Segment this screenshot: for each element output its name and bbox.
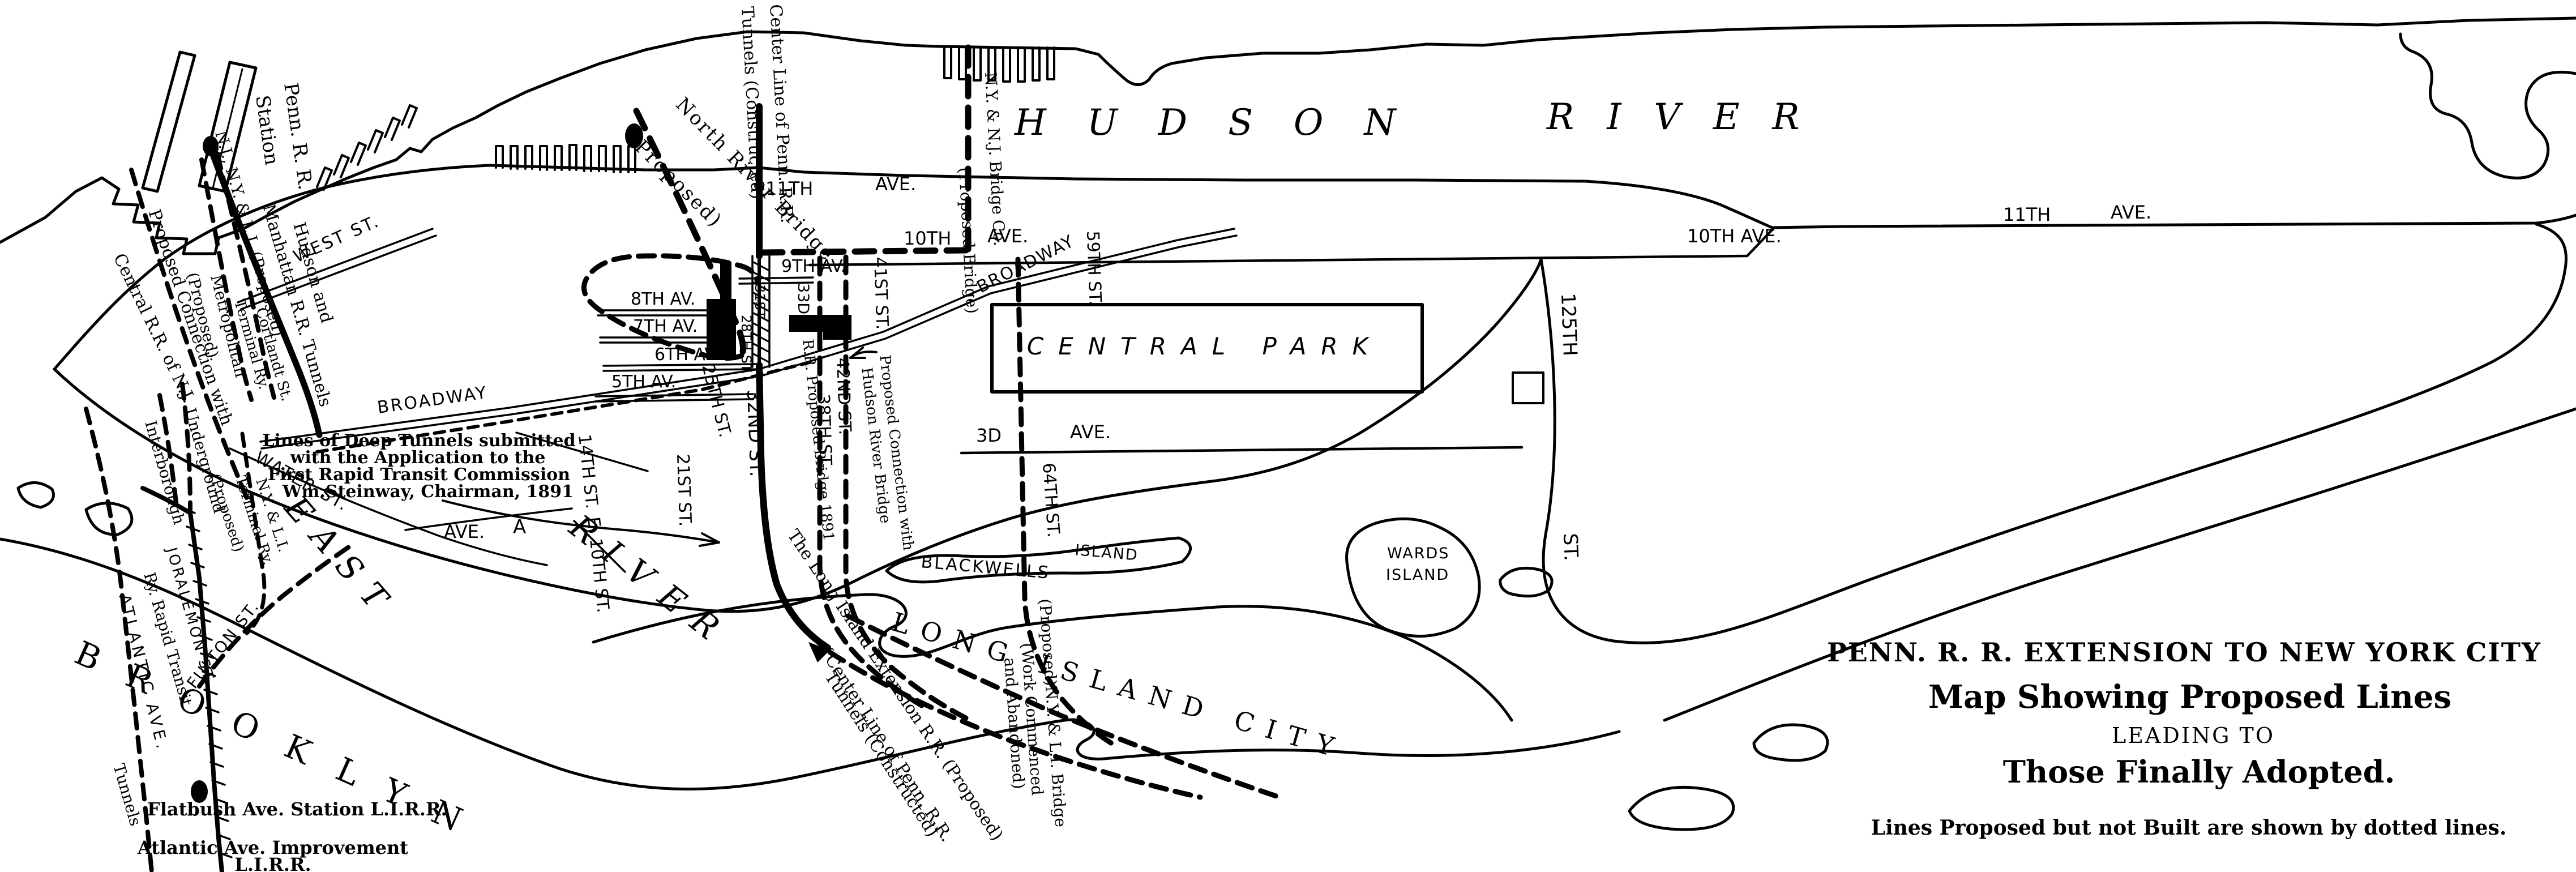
label-st-31: 31ST xyxy=(752,284,768,319)
title-line-3: LEADING TO xyxy=(2112,723,2275,748)
label-st-28: 28TH ST. xyxy=(738,315,754,375)
eleventh-ave-proposed-line xyxy=(763,250,966,253)
label-ave-10-left-num: 10TH xyxy=(904,228,951,249)
label-ave-3-word: AVE. xyxy=(1070,421,1111,443)
grand-central-block xyxy=(789,315,851,332)
grand-central-block-2 xyxy=(823,332,851,340)
label-wards-island: ISLAND xyxy=(1386,566,1449,584)
label-av-7: 7TH AV. xyxy=(633,317,698,336)
label-wards: WARDS xyxy=(1387,545,1449,562)
label-av-5: 5TH AV. xyxy=(611,372,676,392)
label-av-6: 6TH AV. xyxy=(654,345,719,365)
map: HUDSONRIVEREASTRIVERBROOKLYNLONG ISLAND … xyxy=(0,0,2576,872)
title-line-2: Map Showing Proposed Lines xyxy=(1928,678,2451,716)
label-ave-a-word: AVE. xyxy=(444,521,485,542)
label-ave-a-letter: A xyxy=(513,516,526,538)
label-ave-3-num: 3D xyxy=(976,425,1002,446)
title-line-4: Those Finally Adopted. xyxy=(2003,754,2395,790)
label-st-41: 41ST ST. xyxy=(870,257,892,330)
label-st-42: 42ND ST. xyxy=(832,357,855,435)
title-line-1: PENN. R. R. EXTENSION TO NEW YORK CITY xyxy=(1827,637,2541,668)
label-st-59: 59TH ST. xyxy=(1082,230,1105,306)
label-ave-11-left-word: AVE. xyxy=(875,173,916,195)
label-av-8: 8TH AV. xyxy=(631,289,695,309)
label-st-125-num: 125TH xyxy=(1556,293,1581,357)
label-st-33: 33D xyxy=(794,283,812,314)
penn-station-annex xyxy=(720,262,731,299)
label-st-21: 21ST ST. xyxy=(673,454,695,527)
label-central-park: CENTRAL PARK xyxy=(1027,332,1383,360)
label-av-9: 9TH AV. xyxy=(781,257,846,276)
label-st-32: 32ND ST. xyxy=(742,389,768,477)
label-ave-10-right: 10TH AVE. xyxy=(1687,225,1782,247)
label-atlantic-improvement-2: L.I.R.R. xyxy=(234,854,311,872)
label-flatbush-station: Flatbush Ave. Station L.I.R.R. xyxy=(147,798,447,820)
label-ave-11-right-word: AVE. xyxy=(2111,202,2151,223)
label-st-125-word: ST. xyxy=(1559,533,1582,561)
label-deep-tunnels-4: Wm.Steinway, Chairman, 1891 xyxy=(282,482,574,502)
title-note: Lines Proposed but not Built are shown b… xyxy=(1871,816,2507,840)
label-hudson-river-word1: HUDSON xyxy=(1014,102,1436,144)
label-hudson-river-word2: RIVER xyxy=(1546,96,1833,138)
label-ave-11-right-num: 11TH xyxy=(2003,204,2051,225)
